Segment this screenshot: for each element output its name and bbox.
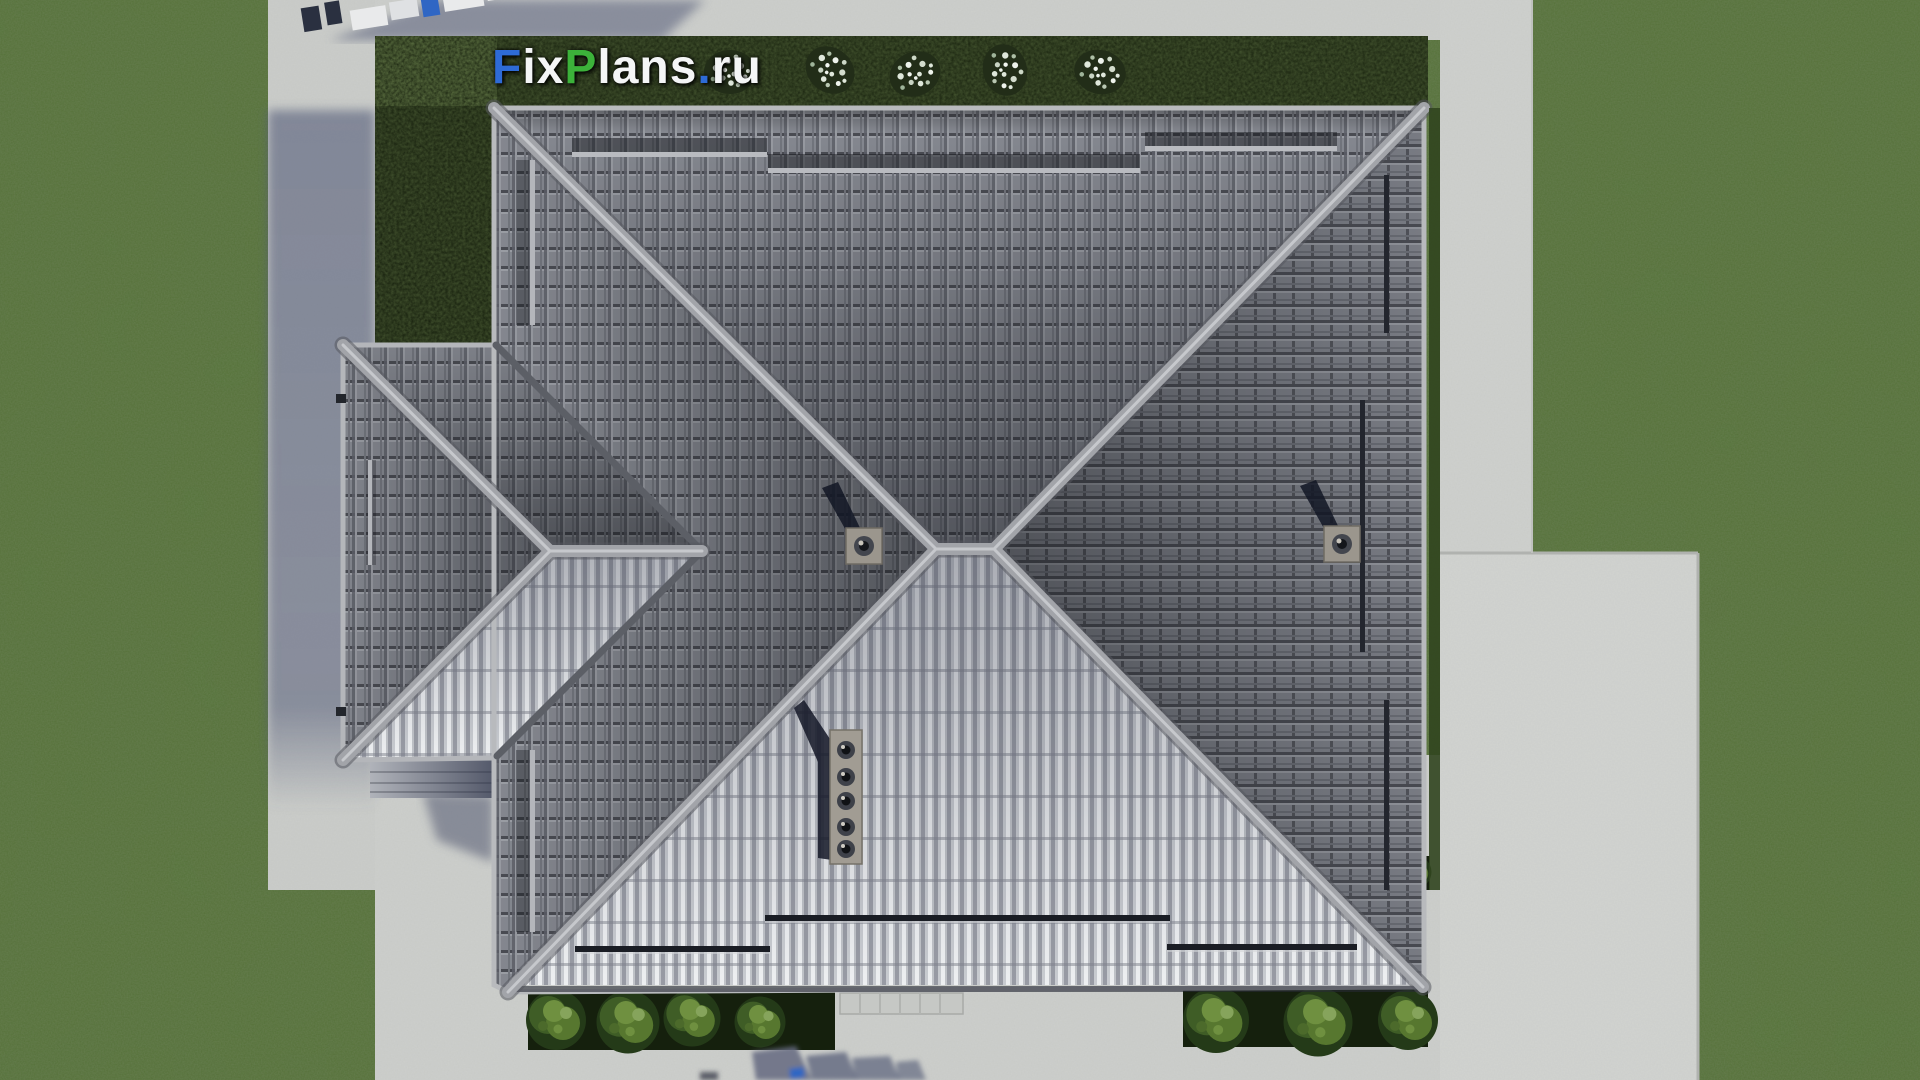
logo-segment: ru (712, 40, 762, 95)
hedge-texture-left (375, 36, 497, 347)
logo-segment: F (492, 40, 522, 95)
gutter-bracket (336, 707, 346, 716)
watermark-logo: FixPlans.ru (492, 40, 762, 95)
logo-segment: lans (597, 40, 697, 95)
logo-segment: ix (522, 40, 564, 95)
side-steps (370, 760, 493, 798)
roof (336, 108, 1424, 992)
entrance-steps (840, 993, 963, 1014)
eave-shadow-top (494, 108, 1424, 134)
logo-segment: . (697, 40, 711, 95)
render-canvas (0, 0, 1920, 1080)
logo-segment: P (564, 40, 597, 95)
right-grass-strip (1429, 108, 1440, 890)
aerial-roof-render: FixPlans.ru (0, 0, 1920, 1080)
gutter-bracket (336, 394, 346, 403)
south-wall-shadow (505, 986, 1423, 992)
